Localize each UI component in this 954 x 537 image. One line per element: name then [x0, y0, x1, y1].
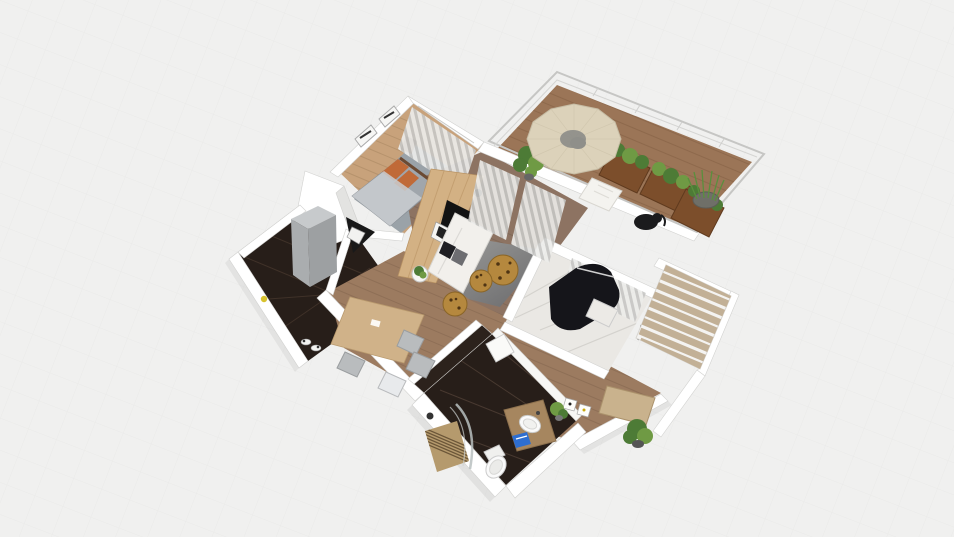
leopard-pouf[interactable] — [443, 292, 467, 316]
small-frame-motif — [583, 409, 586, 412]
shower-head — [427, 413, 434, 420]
faucet — [536, 411, 540, 415]
leopard-pouf[interactable] — [488, 255, 518, 285]
dishes[interactable] — [311, 345, 321, 351]
dishes[interactable] — [301, 339, 311, 345]
floorplan-canvas — [0, 0, 954, 537]
plant-pot — [632, 440, 644, 448]
plant-pot — [555, 415, 563, 421]
small-frame-motif — [569, 403, 572, 406]
dish-detail — [303, 340, 306, 343]
parasol-center-detail — [570, 137, 586, 149]
leopard-pouf[interactable] — [470, 270, 492, 292]
dish-detail — [317, 346, 320, 349]
yellow-item[interactable] — [261, 296, 267, 302]
render-viewport — [0, 0, 954, 537]
side-table-plant — [419, 271, 426, 278]
plant-pot — [524, 174, 534, 181]
